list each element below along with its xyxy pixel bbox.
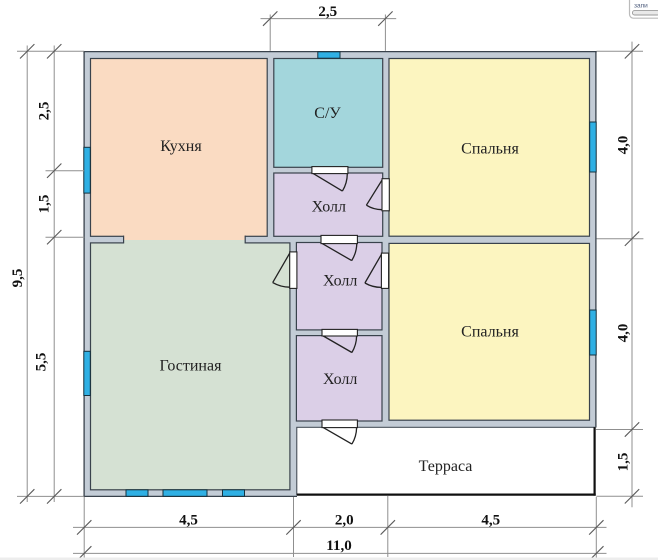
- svg-text:4,5: 4,5: [179, 512, 198, 528]
- svg-text:2,0: 2,0: [335, 512, 354, 528]
- svg-text:Спальня: Спальня: [461, 324, 519, 341]
- svg-text:2,5: 2,5: [318, 4, 337, 20]
- svg-text:Терраса: Терраса: [419, 458, 473, 475]
- svg-text:Холл: Холл: [323, 273, 357, 290]
- svg-text:11,0: 11,0: [326, 538, 351, 554]
- svg-text:1,5: 1,5: [37, 195, 53, 214]
- svg-text:4,0: 4,0: [616, 136, 632, 155]
- svg-text:1,5: 1,5: [616, 453, 632, 472]
- svg-text:Кухня: Кухня: [160, 138, 202, 155]
- svg-text:запи: запи: [634, 3, 648, 10]
- svg-text:Гостиная: Гостиная: [160, 358, 223, 375]
- svg-text:Спальня: Спальня: [461, 141, 519, 158]
- svg-text:Холл: Холл: [323, 371, 357, 388]
- svg-text:Холл: Холл: [312, 199, 346, 216]
- svg-text:5,5: 5,5: [34, 353, 50, 372]
- svg-text:2,5: 2,5: [37, 102, 53, 121]
- svg-text:4,0: 4,0: [616, 324, 632, 343]
- svg-text:4,5: 4,5: [481, 512, 500, 528]
- svg-text:С/У: С/У: [314, 105, 341, 122]
- svg-text:9,5: 9,5: [10, 269, 26, 288]
